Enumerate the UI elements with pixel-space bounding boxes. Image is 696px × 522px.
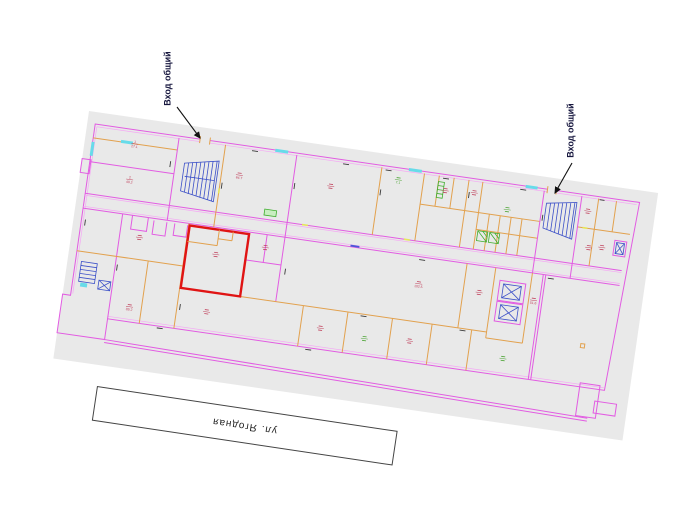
entrance-label-1: Вход общий — [162, 49, 175, 109]
entrance-label-2-text: Вход общий — [566, 103, 576, 157]
svg-text:7.1: 7.1 — [395, 180, 400, 185]
entrance-label-1-text: Вход общий — [163, 51, 173, 105]
entrance-label-2: Вход общий — [565, 101, 578, 161]
street-label-text: ул. Ягодная — [212, 415, 278, 436]
floor-plan-page: 127.1240.264.77.1102.589.251.6 Вход общи… — [0, 0, 696, 522]
